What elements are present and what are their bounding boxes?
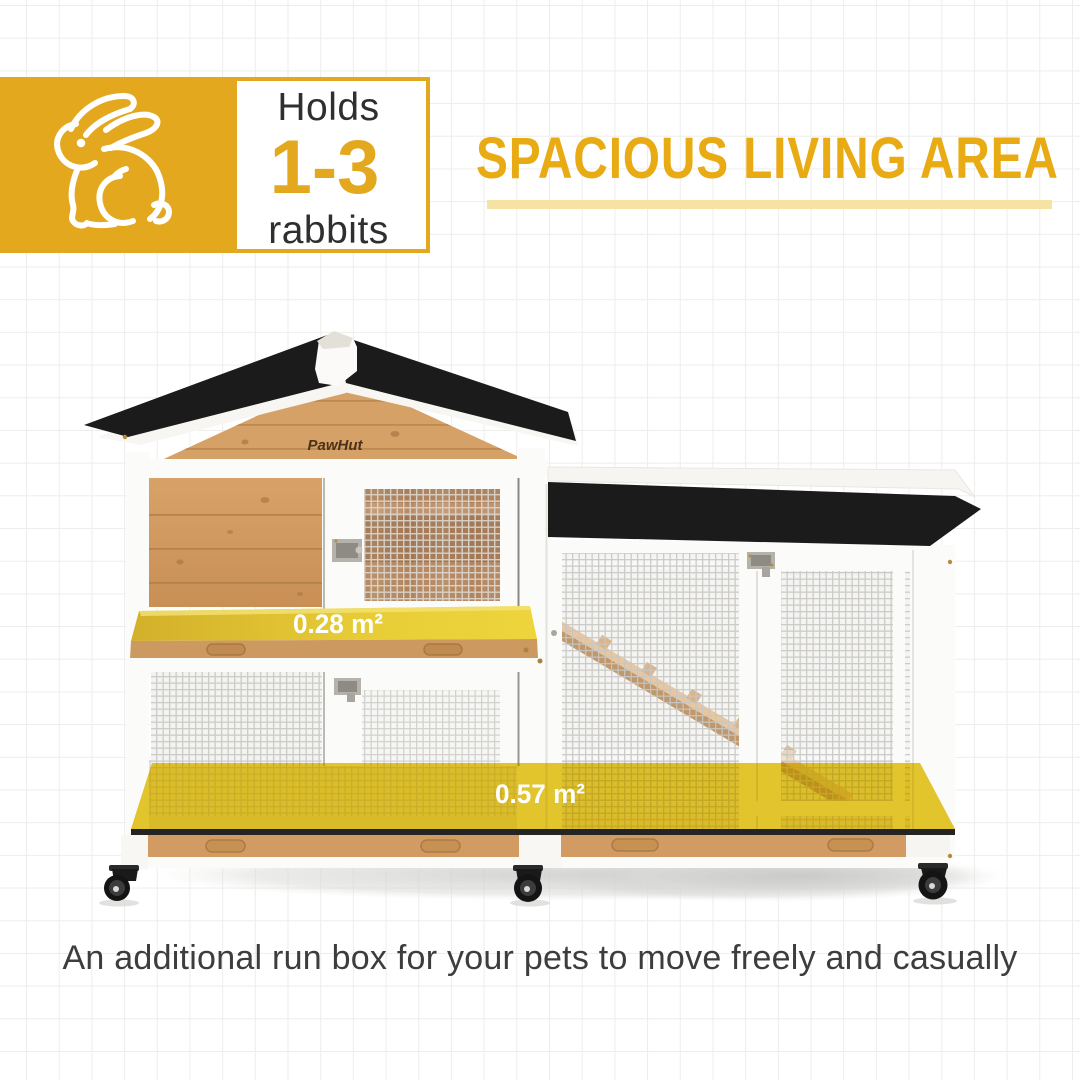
svg-text:0.57 m²: 0.57 m² [495, 779, 585, 809]
svg-text:0.28 m²: 0.28 m² [293, 609, 383, 639]
svg-text:PawHut: PawHut [307, 437, 363, 454]
